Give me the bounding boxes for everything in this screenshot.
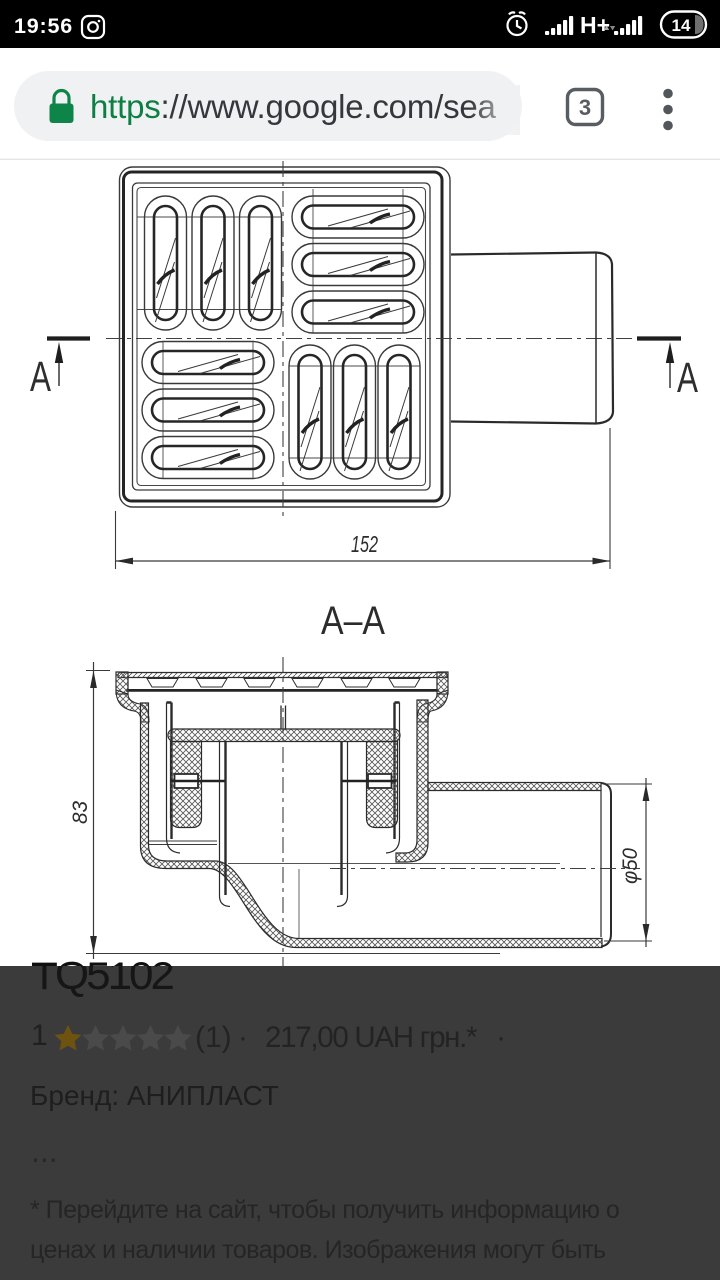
svg-text:H+: H+ [580,12,610,38]
svg-text:https://www.google.com/sea: https://www.google.com/sea [90,88,497,125]
svg-text:TQ5102: TQ5102 [31,954,174,967]
svg-text:φ50: φ50 [619,848,642,884]
svg-text:A: A [30,353,51,401]
svg-text:152: 152 [351,531,378,557]
svg-text:3: 3 [579,95,591,120]
svg-text:83: 83 [69,801,92,824]
svg-text:14: 14 [672,16,691,35]
svg-text:19:56: 19:56 [14,14,73,38]
svg-text:A–A: A–A [321,599,385,643]
svg-text:A: A [677,354,698,402]
